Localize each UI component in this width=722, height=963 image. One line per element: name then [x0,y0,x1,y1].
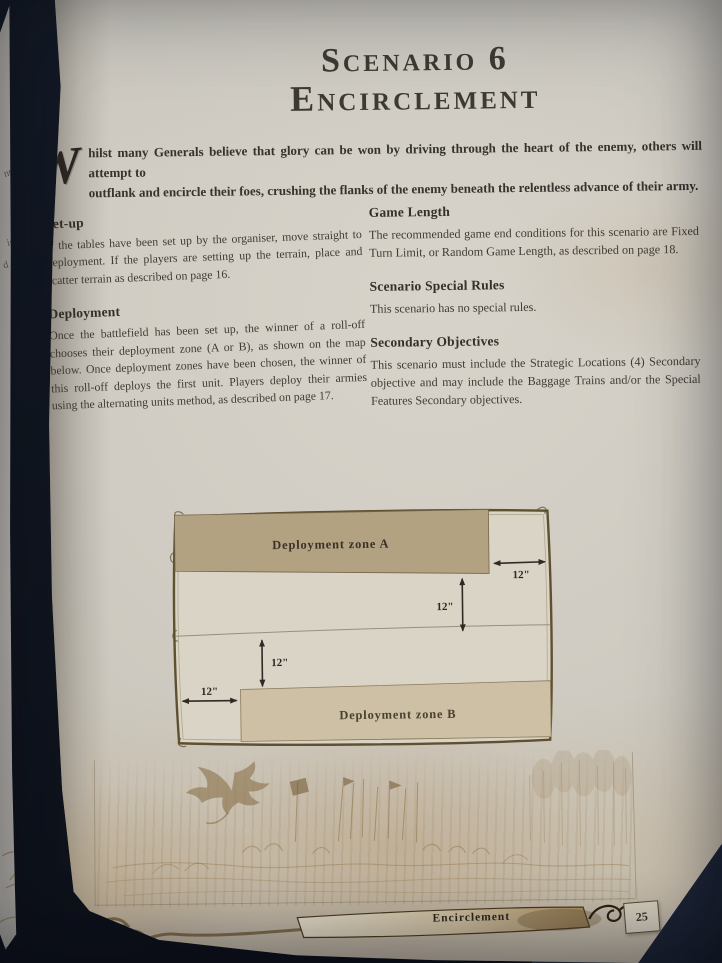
section-game-length: Game Length The recommended game end con… [369,199,700,262]
ribbon-tail [97,914,302,944]
photo-frame: nt io d on Secondary or the Baggage Scen… [0,0,722,963]
page-content: Scenario 6 Encirclement W hilst many Gen… [0,0,722,963]
section-body: This scenario must include the Strategic… [370,352,701,410]
zone-a-label: Deployment zone A [272,537,389,552]
section-secondary-objectives: Secondary Objectives This scenario must … [370,329,701,410]
dim-label-right: 12" [513,569,530,581]
crowd-sketch [106,839,631,898]
scenario-subtitle: Encirclement [135,74,695,122]
dim-label-left: 12" [201,686,218,698]
section-heading: Secondary Objectives [370,329,700,353]
section-heading: Scenario Special Rules [370,273,700,297]
tree-canopy [531,750,632,799]
battle-illustration [91,750,638,909]
page-number-box: 25 [623,900,660,934]
dim-label-lower: 12" [271,657,288,669]
intro-paragraph: W hilst many Generals believe that glory… [34,136,703,205]
dim-arrow-lower [262,640,263,686]
facing-text-fragment: nt [3,167,14,180]
section-heading: Game Length [369,199,699,223]
left-column: Set-up If the tables have been set up by… [45,203,369,430]
page-title: Scenario 6 Encirclement [135,40,696,122]
banners-sketch [290,777,402,796]
book-page: Scenario 6 Encirclement W hilst many Gen… [0,0,722,963]
section-body: Once the battlefield has been set up, th… [49,316,368,415]
dragon-sketch [185,761,270,815]
zone-b-label: Deployment zone B [339,707,456,722]
dim-arrow-upper [462,579,463,631]
deployment-map: Deployment zone A Deployment zone B 12" … [168,506,557,752]
dragon-tail [206,813,228,824]
section-set-up: Set-up If the tables have been set up by… [45,203,364,290]
illustration-sketch [91,750,638,909]
section-body: The recommended game end conditions for … [369,222,699,262]
spears-sketch [295,776,419,843]
facing-text-fragment: io [6,236,17,249]
dim-arrow-left [183,701,237,702]
section-special-rules: Scenario Special Rules This scenario has… [370,273,700,318]
section-body: If the tables have been set up by the or… [46,226,364,290]
intro-dropcap: W [33,146,82,190]
dim-label-upper: 12" [436,601,453,613]
right-column: Game Length The recommended game end con… [369,199,702,425]
section-deployment: Deployment Once the battlefield has been… [48,293,368,415]
page-number: 25 [635,909,648,925]
section-body: This scenario has no special rules. [370,296,700,318]
facing-text-fragment: d on [2,256,22,272]
